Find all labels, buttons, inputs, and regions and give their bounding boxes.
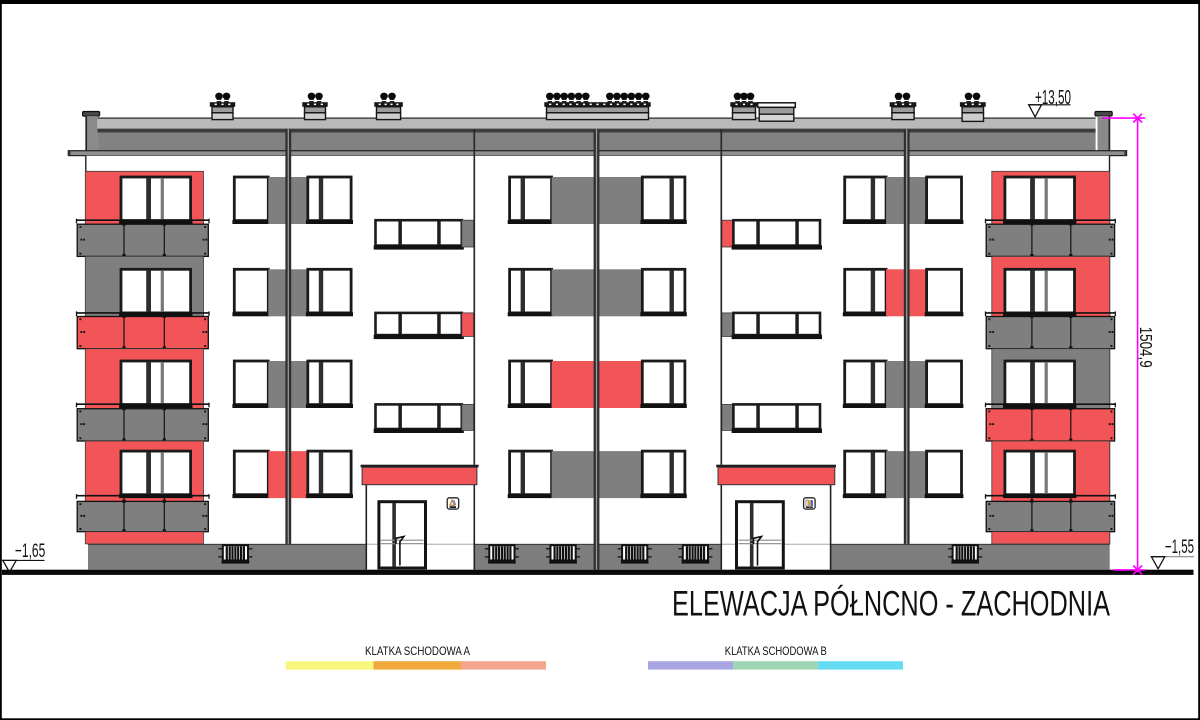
svg-text:−1,65: −1,65	[15, 540, 45, 562]
svg-text:KLATKA SCHODOWA B: KLATKA SCHODOWA B	[725, 644, 827, 658]
svg-text:ELEWACJA PÓŁNCNO - ZACHODNIA: ELEWACJA PÓŁNCNO - ZACHODNIA	[672, 584, 1110, 624]
svg-text:1504,9: 1504,9	[1136, 327, 1156, 368]
svg-text:−1,55: −1,55	[1165, 537, 1194, 558]
svg-text:KLATKA SCHODOWA A: KLATKA SCHODOWA A	[365, 644, 470, 658]
